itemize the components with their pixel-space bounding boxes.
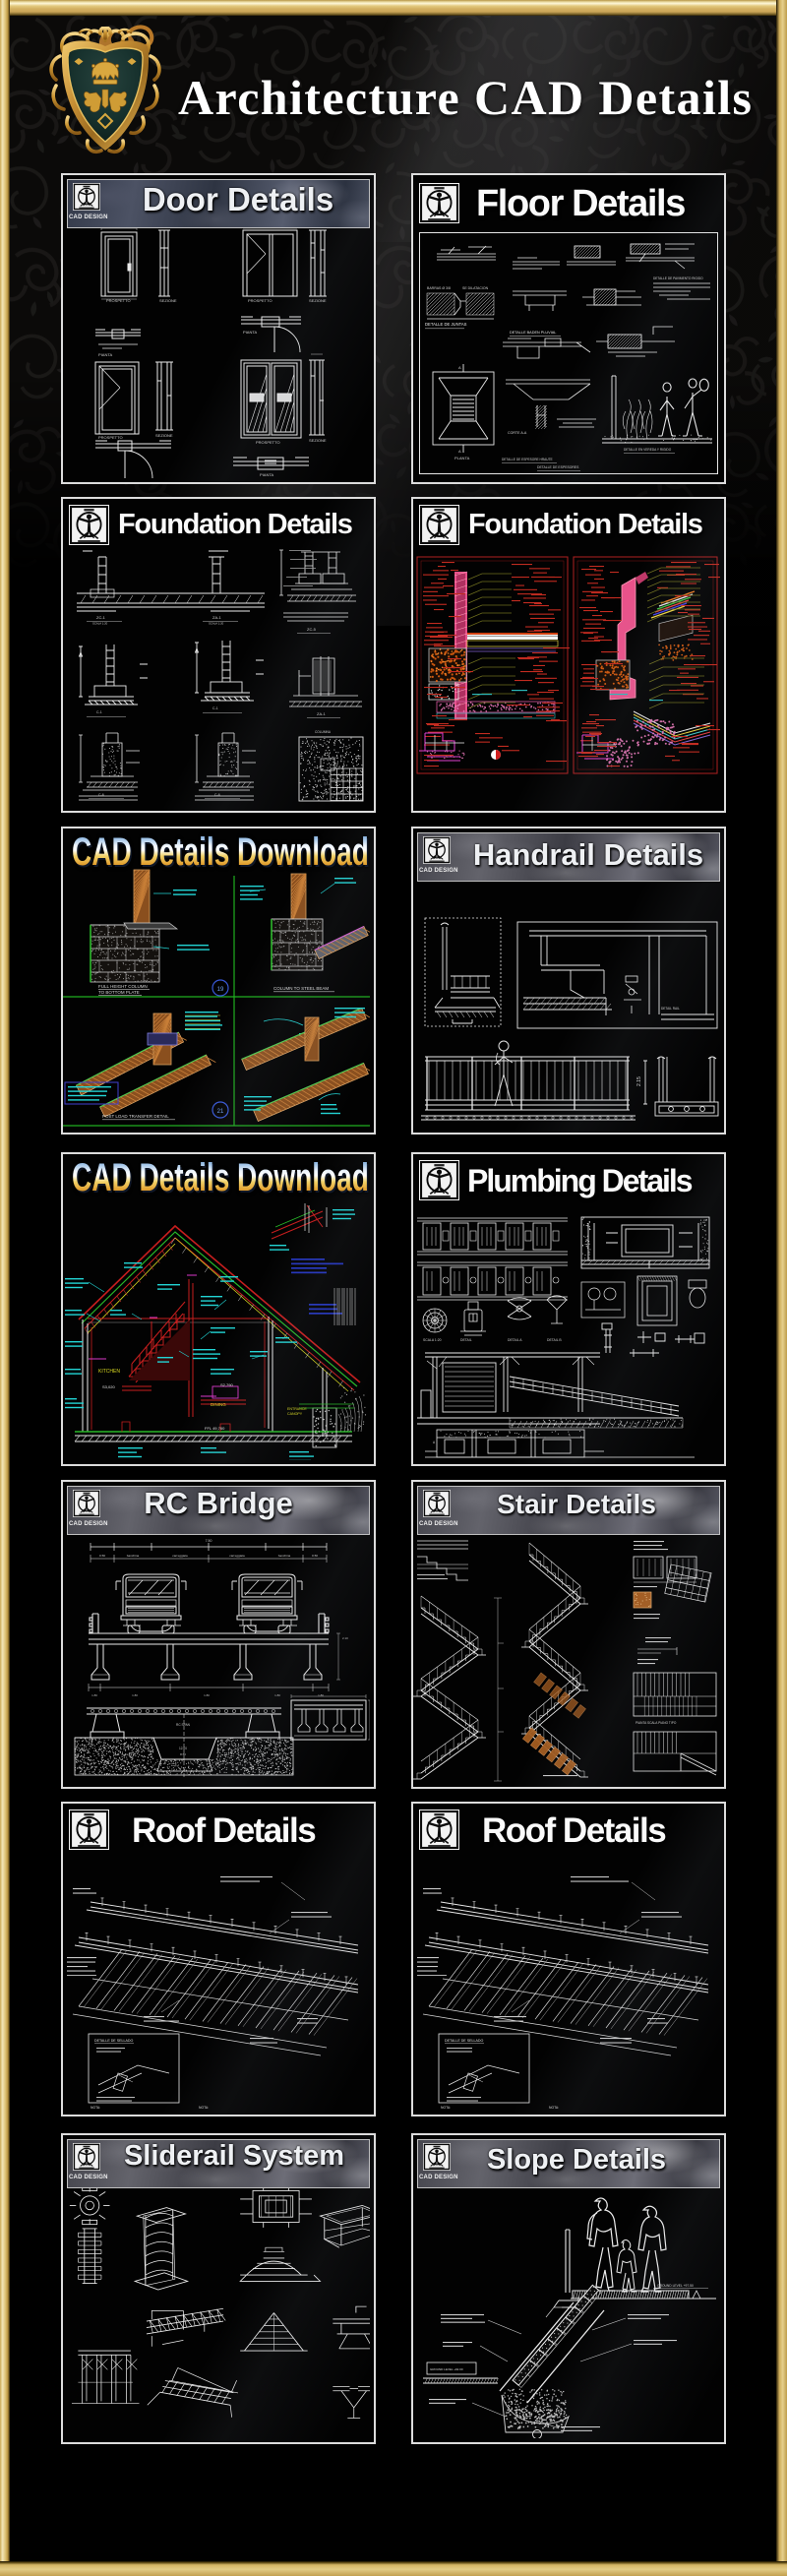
svg-text:1.80: 1.80 <box>204 1693 210 1697</box>
svg-text:POST LOAD TRANSFER DETAIL: POST LOAD TRANSFER DETAIL <box>102 1114 169 1119</box>
svg-text:TO BOTTOM PLATE: TO BOTTOM PLATE <box>98 990 140 995</box>
svg-text:PROSPETTO: PROSPETTO <box>256 440 280 445</box>
svg-text:carreggiata: carreggiata <box>172 1554 188 1558</box>
svg-text:21: 21 <box>217 1109 224 1115</box>
svg-text:SE DILATACION: SE DILATACION <box>462 286 489 290</box>
svg-text:SEZIONE: SEZIONE <box>309 298 327 303</box>
svg-text:ZA-1: ZA-1 <box>317 711 326 716</box>
svg-text:DETALLE DE JUNTAS: DETALLE DE JUNTAS <box>425 322 467 327</box>
svg-text:carreggiata: carreggiata <box>229 1554 245 1558</box>
svg-text:A: A <box>433 1441 436 1444</box>
svg-text:CANOPY: CANOPY <box>287 1412 303 1416</box>
svg-text:PROSPETTO: PROSPETTO <box>248 298 272 303</box>
svg-text:DETALLE DE SELLADO: DETALLE DE SELLADO <box>94 2039 133 2043</box>
svg-text:NOTA:: NOTA: <box>91 2106 100 2110</box>
svg-text:DINING: DINING <box>211 1402 226 1407</box>
svg-text:banchina: banchina <box>278 1554 291 1558</box>
svg-text:ZC-5: ZC-5 <box>307 627 317 632</box>
svg-text:DETAIL A: DETAIL A <box>508 1338 522 1342</box>
svg-text:S3,020: S3,020 <box>102 1384 115 1389</box>
svg-text:ENTRANCE: ENTRANCE <box>287 1407 307 1411</box>
svg-text:SEZIONE: SEZIONE <box>309 438 327 443</box>
svg-text:FFL 49,760: FFL 49,760 <box>205 1426 225 1431</box>
svg-text:0.50: 0.50 <box>99 1554 105 1558</box>
svg-text:SCALA 1:20: SCALA 1:20 <box>209 622 224 626</box>
svg-text:S2,790: S2,790 <box>220 1382 233 1387</box>
svg-text:DETALLE DE PAVIMENTO RIGIDO: DETALLE DE PAVIMENTO RIGIDO <box>653 276 703 280</box>
svg-text:C-6: C-6 <box>98 793 104 797</box>
svg-text:1.80: 1.80 <box>132 1693 138 1697</box>
svg-text:DETAIL: DETAIL <box>460 1338 472 1342</box>
svg-text:PLANTA: PLANTA <box>454 456 470 460</box>
svg-text:PROSPETTO: PROSPETTO <box>98 435 123 440</box>
svg-text:SCALA 1:20: SCALA 1:20 <box>423 1338 442 1342</box>
svg-text:banchina: banchina <box>127 1554 140 1558</box>
svg-text:1.80: 1.80 <box>91 1693 97 1697</box>
svg-text:COLUMN TO STEEL BEAM: COLUMN TO STEEL BEAM <box>273 986 329 991</box>
svg-text:19: 19 <box>217 987 224 993</box>
svg-text:DETAIL RAIL: DETAIL RAIL <box>661 1007 680 1011</box>
svg-text:DETAIL B: DETAIL B <box>547 1338 562 1342</box>
svg-text:C-6: C-6 <box>214 793 220 797</box>
svg-text:12.00: 12.00 <box>179 1747 187 1750</box>
svg-text:RC SPAN: RC SPAN <box>176 1723 191 1727</box>
svg-text:SEZIONE: SEZIONE <box>155 433 173 438</box>
svg-text:DETALLE DE ESPESORES: DETALLE DE ESPESORES <box>537 465 579 469</box>
svg-text:0.50: 0.50 <box>312 1554 318 1558</box>
svg-text:SEZIONE: SEZIONE <box>159 298 177 303</box>
svg-text:CORTE A-A: CORTE A-A <box>508 431 527 435</box>
svg-text:1.80: 1.80 <box>274 1693 280 1697</box>
svg-text:2.10: 2.10 <box>342 1636 348 1640</box>
svg-text:GROUND LEVEL +97.50: GROUND LEVEL +97.50 <box>657 2284 694 2288</box>
svg-text:PIANTA: PIANTA <box>260 472 273 477</box>
svg-text:2.15: 2.15 <box>636 1076 642 1086</box>
svg-text:PIANTA: PIANTA <box>243 330 257 335</box>
svg-text:A: A <box>458 449 461 454</box>
svg-text:BARRAS Ø 3/8: BARRAS Ø 3/8 <box>427 286 451 290</box>
svg-text:KITCHEN: KITCHEN <box>98 1369 120 1375</box>
svg-text:PIANTA SCALA PIANO TIPO: PIANTA SCALA PIANO TIPO <box>636 1721 677 1725</box>
svg-text:SCALA 1:20: SCALA 1:20 <box>92 622 108 626</box>
svg-text:GROUND LEVEL +92.00: GROUND LEVEL +92.00 <box>430 2367 463 2371</box>
svg-text:DETALLE DE SELLADO: DETALLE DE SELLADO <box>445 2039 483 2043</box>
svg-text:8.50: 8.50 <box>180 1752 186 1756</box>
svg-text:DETALLE BADEN PLUVIAL: DETALLE BADEN PLUVIAL <box>510 331 556 335</box>
svg-text:DETALLE DE ESPESORE HRAUTE: DETALLE DE ESPESORE HRAUTE <box>502 458 553 461</box>
svg-text:NOTA:: NOTA: <box>549 2106 559 2110</box>
svg-text:1.80: 1.80 <box>318 1693 324 1697</box>
svg-text:NOTA:: NOTA: <box>441 2106 451 2110</box>
svg-text:DETALLE EN VEREDA Y RIGIDO: DETALLE EN VEREDA Y RIGIDO <box>624 448 672 452</box>
svg-text:FULL HEIGHT COLUMN: FULL HEIGHT COLUMN <box>98 984 148 989</box>
svg-text:A: A <box>458 365 461 370</box>
svg-text:ZC-1: ZC-1 <box>96 615 106 620</box>
svg-text:C-1: C-1 <box>212 706 218 710</box>
svg-text:C-1: C-1 <box>96 710 102 714</box>
svg-text:ZA-1: ZA-1 <box>212 615 221 620</box>
svg-text:COLUMNA: COLUMNA <box>315 730 332 734</box>
svg-text:PIANTA: PIANTA <box>98 352 112 357</box>
svg-text:7.50: 7.50 <box>206 1539 212 1543</box>
svg-text:NOTA:: NOTA: <box>199 2106 209 2110</box>
